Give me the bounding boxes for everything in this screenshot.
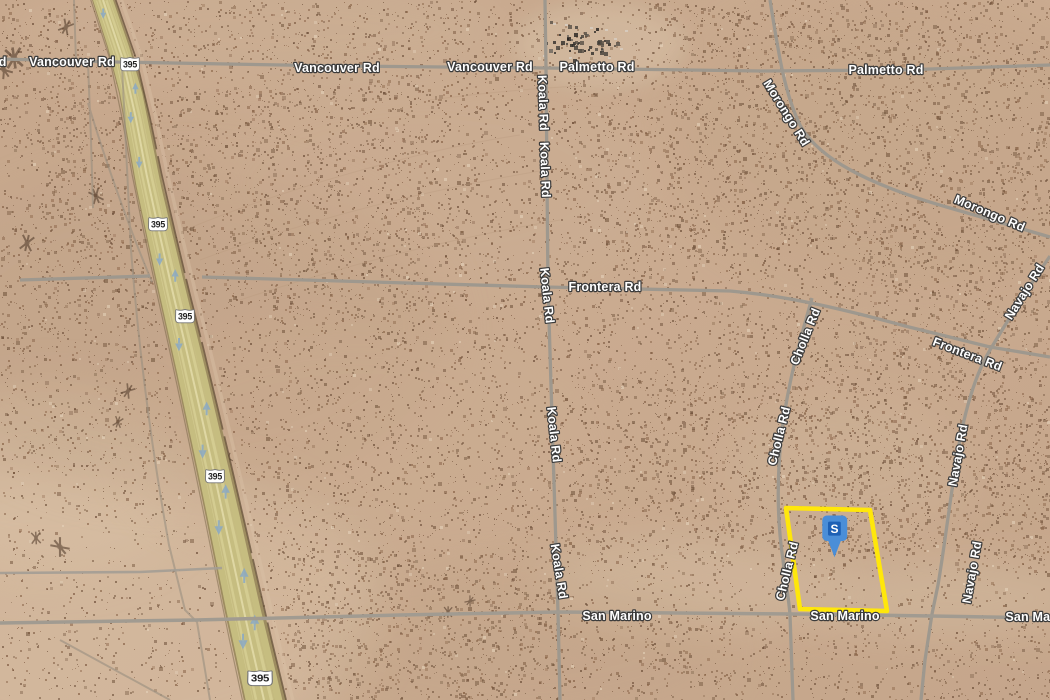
svg-text:Palmetto Rd: Palmetto Rd bbox=[848, 63, 923, 77]
svg-text:Koala Rd: Koala Rd bbox=[537, 142, 553, 198]
svg-text:Vancouver Rd: Vancouver Rd bbox=[447, 60, 533, 74]
svg-text:395: 395 bbox=[151, 219, 165, 229]
svg-text:395: 395 bbox=[208, 471, 222, 481]
svg-text:San Marino: San Marino bbox=[810, 609, 880, 623]
svg-text:395: 395 bbox=[123, 59, 137, 69]
svg-text:Frontera Rd: Frontera Rd bbox=[568, 280, 641, 294]
svg-text:395: 395 bbox=[178, 311, 192, 321]
svg-text:S: S bbox=[830, 522, 838, 536]
svg-text:Palmetto Rd: Palmetto Rd bbox=[559, 60, 634, 74]
svg-text:Koala Rd: Koala Rd bbox=[535, 75, 551, 131]
svg-text:Vancouver Rd: Vancouver Rd bbox=[29, 55, 115, 69]
svg-text:San Marino: San Marino bbox=[1005, 610, 1050, 624]
svg-text:San Marino: San Marino bbox=[582, 609, 652, 623]
svg-text:395: 395 bbox=[251, 673, 270, 684]
svg-text:Rd: Rd bbox=[0, 55, 7, 69]
svg-text:Vancouver Rd: Vancouver Rd bbox=[294, 61, 380, 75]
